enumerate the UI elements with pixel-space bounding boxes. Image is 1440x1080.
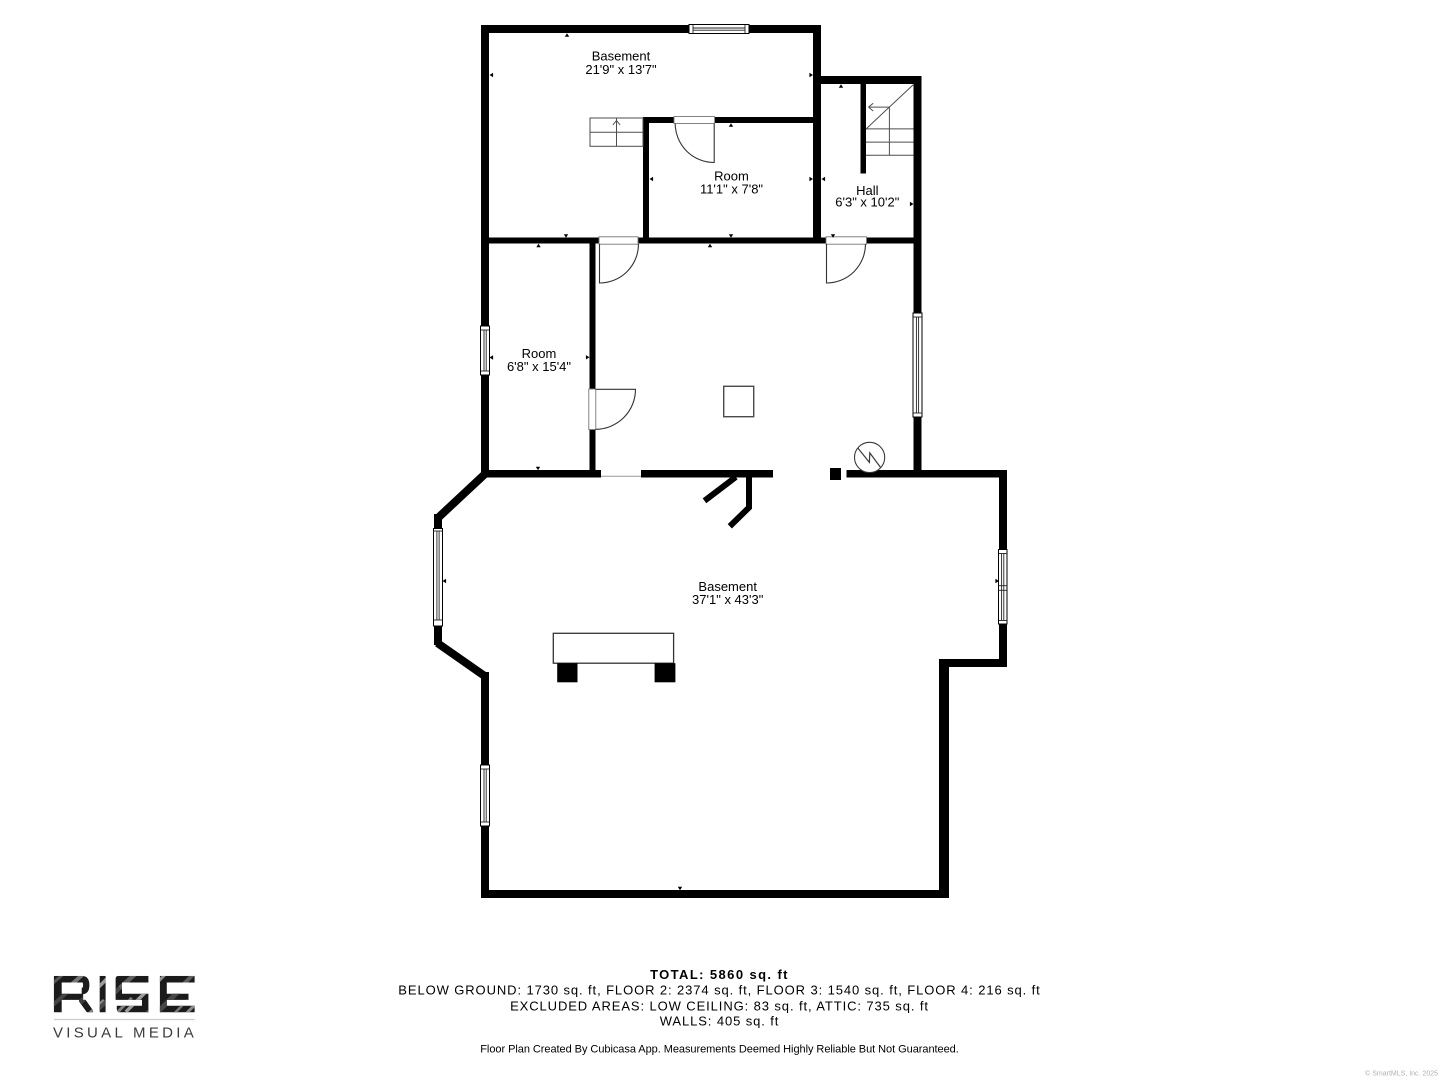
svg-text:VISUAL MEDIA: VISUAL MEDIA <box>53 1025 197 1042</box>
svg-text:WALLS: 405 sq. ft: WALLS: 405 sq. ft <box>660 1014 780 1029</box>
svg-text:© SmartMLS, Inc. 2025: © SmartMLS, Inc. 2025 <box>1365 1070 1438 1078</box>
svg-text:Floor Plan Created By Cubicasa: Floor Plan Created By Cubicasa App. Meas… <box>480 1043 958 1055</box>
svg-text:BELOW GROUND: 1730 sq. ft, FLO: BELOW GROUND: 1730 sq. ft, FLOOR 2: 2374… <box>398 982 1040 997</box>
svg-text:6'8" x 15'4": 6'8" x 15'4" <box>507 359 571 374</box>
svg-text:21'9" x 13'7": 21'9" x 13'7" <box>585 62 657 77</box>
svg-text:TOTAL: 5860 sq. ft: TOTAL: 5860 sq. ft <box>650 967 789 982</box>
svg-text:EXCLUDED AREAS: LOW CEILING: 8: EXCLUDED AREAS: LOW CEILING: 83 sq. ft, … <box>510 998 929 1013</box>
svg-text:11'1" x 7'8": 11'1" x 7'8" <box>700 182 763 197</box>
svg-text:6'3" x 10'2": 6'3" x 10'2" <box>835 195 899 210</box>
svg-text:37'1" x 43'3": 37'1" x 43'3" <box>692 592 764 607</box>
